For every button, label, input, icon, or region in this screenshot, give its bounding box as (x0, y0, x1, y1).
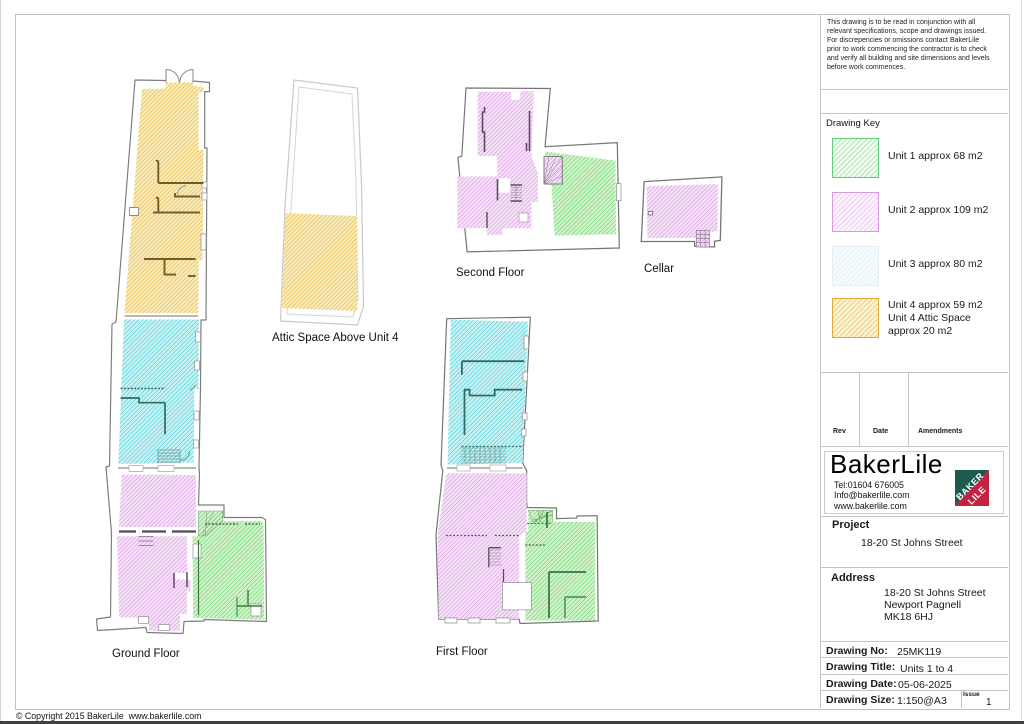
svg-text:Ground Floor: Ground Floor (112, 648, 180, 660)
svg-text:Second Floor: Second Floor (456, 267, 525, 279)
svg-text:First Floor: First Floor (436, 646, 488, 658)
svg-text:Attic Space Above Unit 4: Attic Space Above Unit 4 (272, 332, 399, 344)
svg-text:Cellar: Cellar (644, 263, 674, 275)
